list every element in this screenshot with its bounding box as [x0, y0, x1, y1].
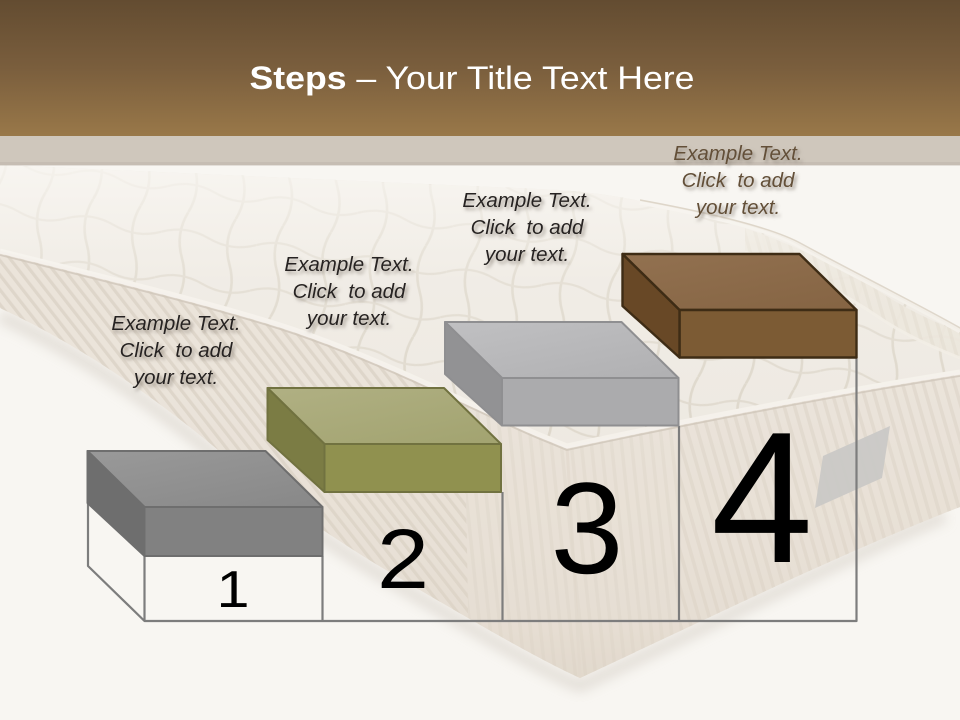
- svg-text:Click to add: Click to add: [293, 280, 406, 303]
- svg-text:Example Text.: Example Text.: [111, 312, 240, 335]
- svg-text:Example Text.: Example Text.: [673, 142, 802, 165]
- svg-text:your text.: your text.: [305, 307, 391, 330]
- svg-text:Click to add: Click to add: [682, 169, 795, 192]
- svg-text:Example Text.: Example Text.: [284, 253, 413, 276]
- svg-text:Example Text.: Example Text.: [462, 189, 591, 212]
- svg-text:Click to add: Click to add: [120, 339, 233, 362]
- svg-text:your text.: your text.: [694, 196, 780, 219]
- svg-text:4: 4: [711, 393, 813, 602]
- svg-text:your text.: your text.: [132, 366, 218, 389]
- svg-text:1: 1: [217, 561, 250, 619]
- svg-text:Click to add: Click to add: [471, 216, 584, 239]
- svg-text:2: 2: [377, 512, 429, 606]
- svg-text:3: 3: [551, 455, 624, 601]
- svg-text:your text.: your text.: [483, 243, 569, 266]
- svg-text:Steps – Your Title Text Here: Steps – Your Title Text Here: [250, 60, 695, 96]
